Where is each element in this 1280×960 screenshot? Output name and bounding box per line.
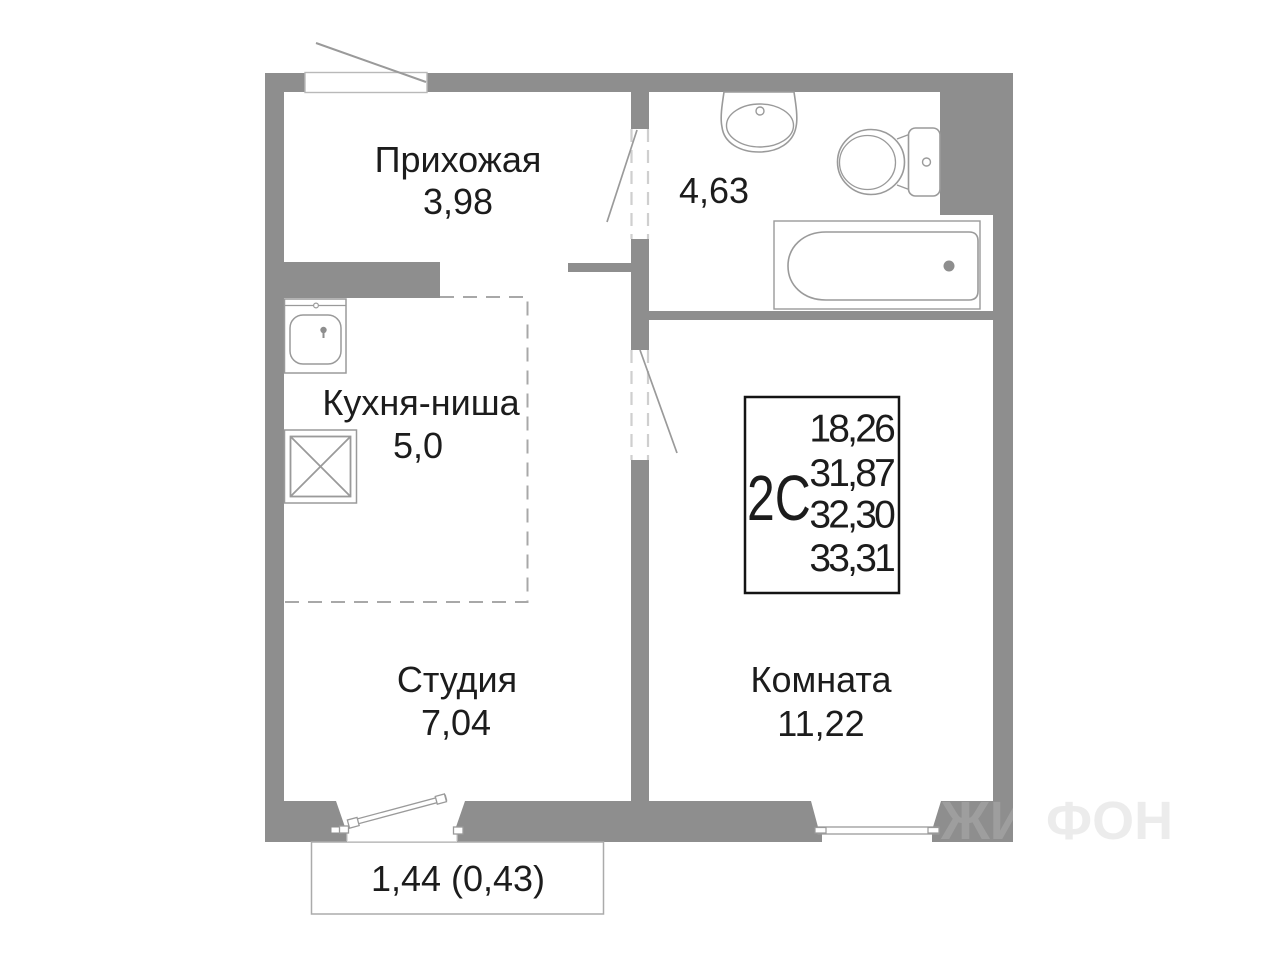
svg-text:1,44 (0,43): 1,44 (0,43)	[371, 858, 545, 899]
svg-text:33,31: 33,31	[809, 537, 894, 580]
svg-text:3,98: 3,98	[423, 181, 493, 222]
svg-text:2С: 2С	[747, 463, 811, 534]
svg-text:11,22: 11,22	[777, 703, 864, 744]
svg-text:18,26: 18,26	[809, 408, 894, 451]
svg-text:32,30: 32,30	[809, 494, 895, 537]
svg-text:Комната: Комната	[751, 659, 893, 700]
svg-text:Студия: Студия	[397, 659, 517, 700]
svg-text:Кухня-ниша: Кухня-ниша	[322, 382, 520, 423]
svg-text:7,04: 7,04	[421, 702, 491, 743]
svg-text:Прихожая: Прихожая	[375, 139, 542, 180]
svg-text:5,0: 5,0	[393, 425, 443, 466]
svg-text:ФОН: ФОН	[1046, 791, 1173, 851]
svg-text:31,87: 31,87	[809, 452, 894, 495]
svg-text:4,63: 4,63	[679, 170, 749, 211]
